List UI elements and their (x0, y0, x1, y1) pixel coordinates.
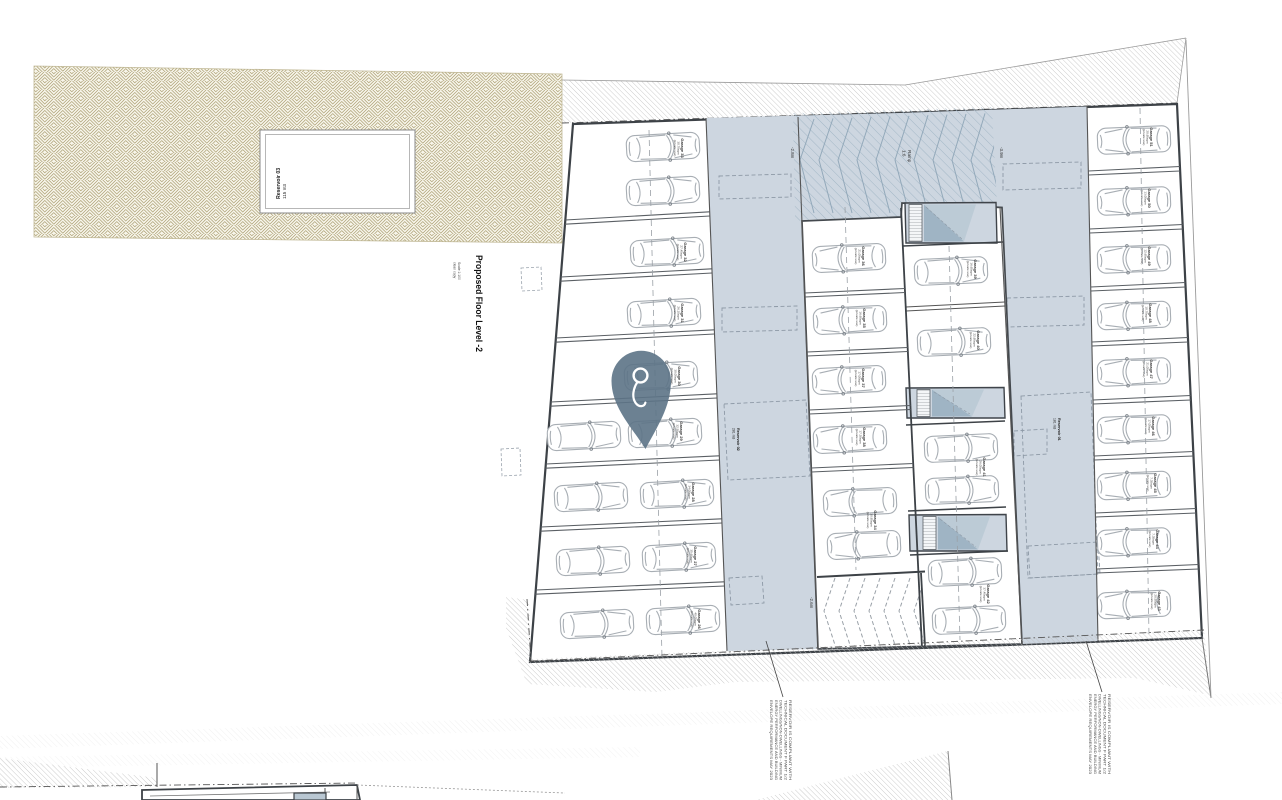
svg-text:-3.9m: -3.9m (999, 147, 1004, 159)
svg-text:DWELLINGS/NON-DWELLINGS - MINI: DWELLINGS/NON-DWELLINGS - MINIMUM (1098, 694, 1102, 774)
svg-text:ENVELOPE REQUIREMENTS MAY 2023: ENVELOPE REQUIREMENTS MAY 2023 (769, 700, 773, 780)
svg-text:(private use): (private use) (855, 429, 859, 446)
svg-text:1:6: 1:6 (902, 150, 907, 157)
svg-text:(private use): (private use) (866, 512, 870, 529)
svg-text:(private use): (private use) (979, 586, 983, 603)
svg-text:(private use): (private use) (966, 261, 970, 278)
svg-text:(private use): (private use) (1144, 418, 1148, 435)
svg-text:Reservoir 01: Reservoir 01 (1057, 418, 1061, 441)
svg-text:(private use): (private use) (1140, 190, 1144, 207)
svg-text:(private use): (private use) (969, 332, 973, 349)
svg-text:(private use): (private use) (1148, 531, 1152, 548)
svg-text:ENVELOPE REQUIREMENTS MAY 2023: ENVELOPE REQUIREMENTS MAY 2023 (1088, 694, 1092, 774)
svg-text:(private use): (private use) (1150, 593, 1154, 610)
svg-text:(private use): (private use) (684, 484, 688, 501)
svg-text:ENERGY PERFORMANCE AND BUILDIN: ENERGY PERFORMANCE AND BUILDING (774, 700, 778, 781)
svg-text:281 m3: 281 m3 (731, 428, 735, 439)
svg-text:(private use): (private use) (975, 459, 979, 476)
svg-text:-2.8m: -2.8m (790, 147, 795, 159)
svg-text:(private use): (private use) (854, 248, 858, 265)
svg-text:115 m3: 115 m3 (282, 184, 287, 199)
svg-text:ENERGY PERFORMANCE AND BUILDIN: ENERGY PERFORMANCE AND BUILDING (1093, 694, 1097, 775)
svg-text:(private use): (private use) (673, 140, 677, 157)
svg-text:(private use): (private use) (686, 548, 690, 565)
svg-text:TECHNICAL DOCUMENT F PART 1/2: TECHNICAL DOCUMENT F PART 1/2 (783, 700, 787, 780)
svg-text:DWELLINGS/NON-DWELLINGS - MINI: DWELLINGS/NON-DWELLINGS - MINIMUM (779, 700, 783, 780)
svg-text:181 m3: 181 m3 (1052, 418, 1056, 429)
svg-text:(private use): (private use) (673, 305, 677, 322)
svg-text:(private use): (private use) (854, 370, 858, 387)
svg-text:Proposed Floor Level -2: Proposed Floor Level -2 (474, 255, 485, 352)
svg-text:(private use): (private use) (1142, 129, 1146, 146)
svg-text:Scale 1:100: Scale 1:100 (457, 262, 461, 280)
svg-text:RESERVOIR IS COMPLIANT WITH: RESERVOIR IS COMPLIANT WITH (1107, 694, 1111, 775)
svg-text:RESERVOIR IS COMPLIANT WITH: RESERVOIR IS COMPLIANT WITH (788, 700, 792, 781)
svg-text:TECHNICAL DOCUMENT F PART 1/2: TECHNICAL DOCUMENT F PART 1/2 (1102, 694, 1106, 774)
svg-text:clean copy: clean copy (452, 262, 456, 279)
svg-text:(private use): (private use) (672, 423, 676, 440)
svg-text:(private use): (private use) (855, 310, 859, 327)
svg-text:Reservoir 02: Reservoir 02 (736, 428, 740, 451)
svg-text:-2.6m: -2.6m (809, 597, 814, 609)
svg-text:Ramp: Ramp (907, 150, 912, 163)
svg-text:(private use): (private use) (690, 611, 694, 628)
svg-text:(private use): (private use) (676, 244, 680, 261)
